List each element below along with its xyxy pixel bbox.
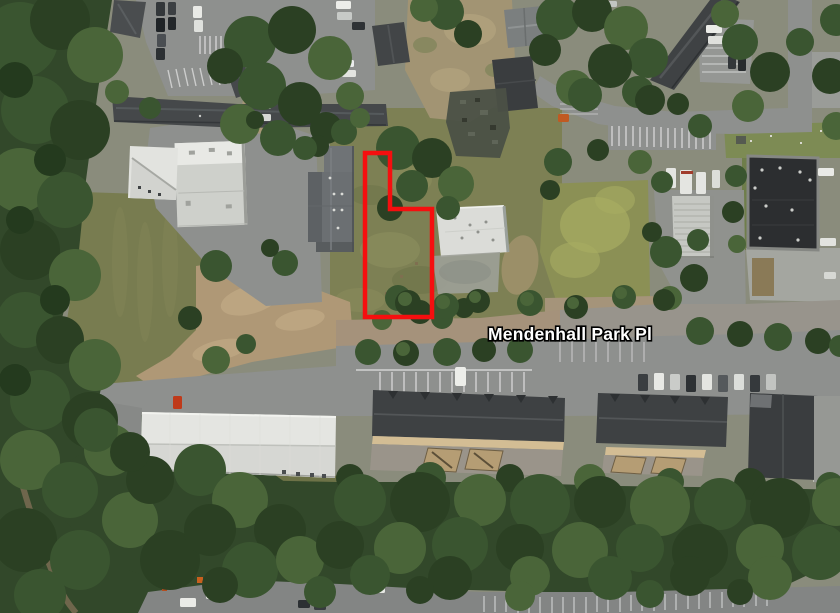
industrial-building-c [748,393,840,484]
red-car [173,396,182,409]
orange-car [558,114,569,122]
office-building-white [175,141,248,227]
aerial-map-viewport[interactable]: Mendenhall Park Pl [0,0,840,613]
flat-roof-building-black [748,156,818,250]
white-roof-building-small [128,146,178,200]
industrial-building-a [370,390,565,476]
apartment-building-north [110,0,146,38]
white-van [455,367,466,386]
street-label: Mendenhall Park Pl [488,324,652,344]
aerial-imagery: Mendenhall Park Pl [0,0,840,613]
